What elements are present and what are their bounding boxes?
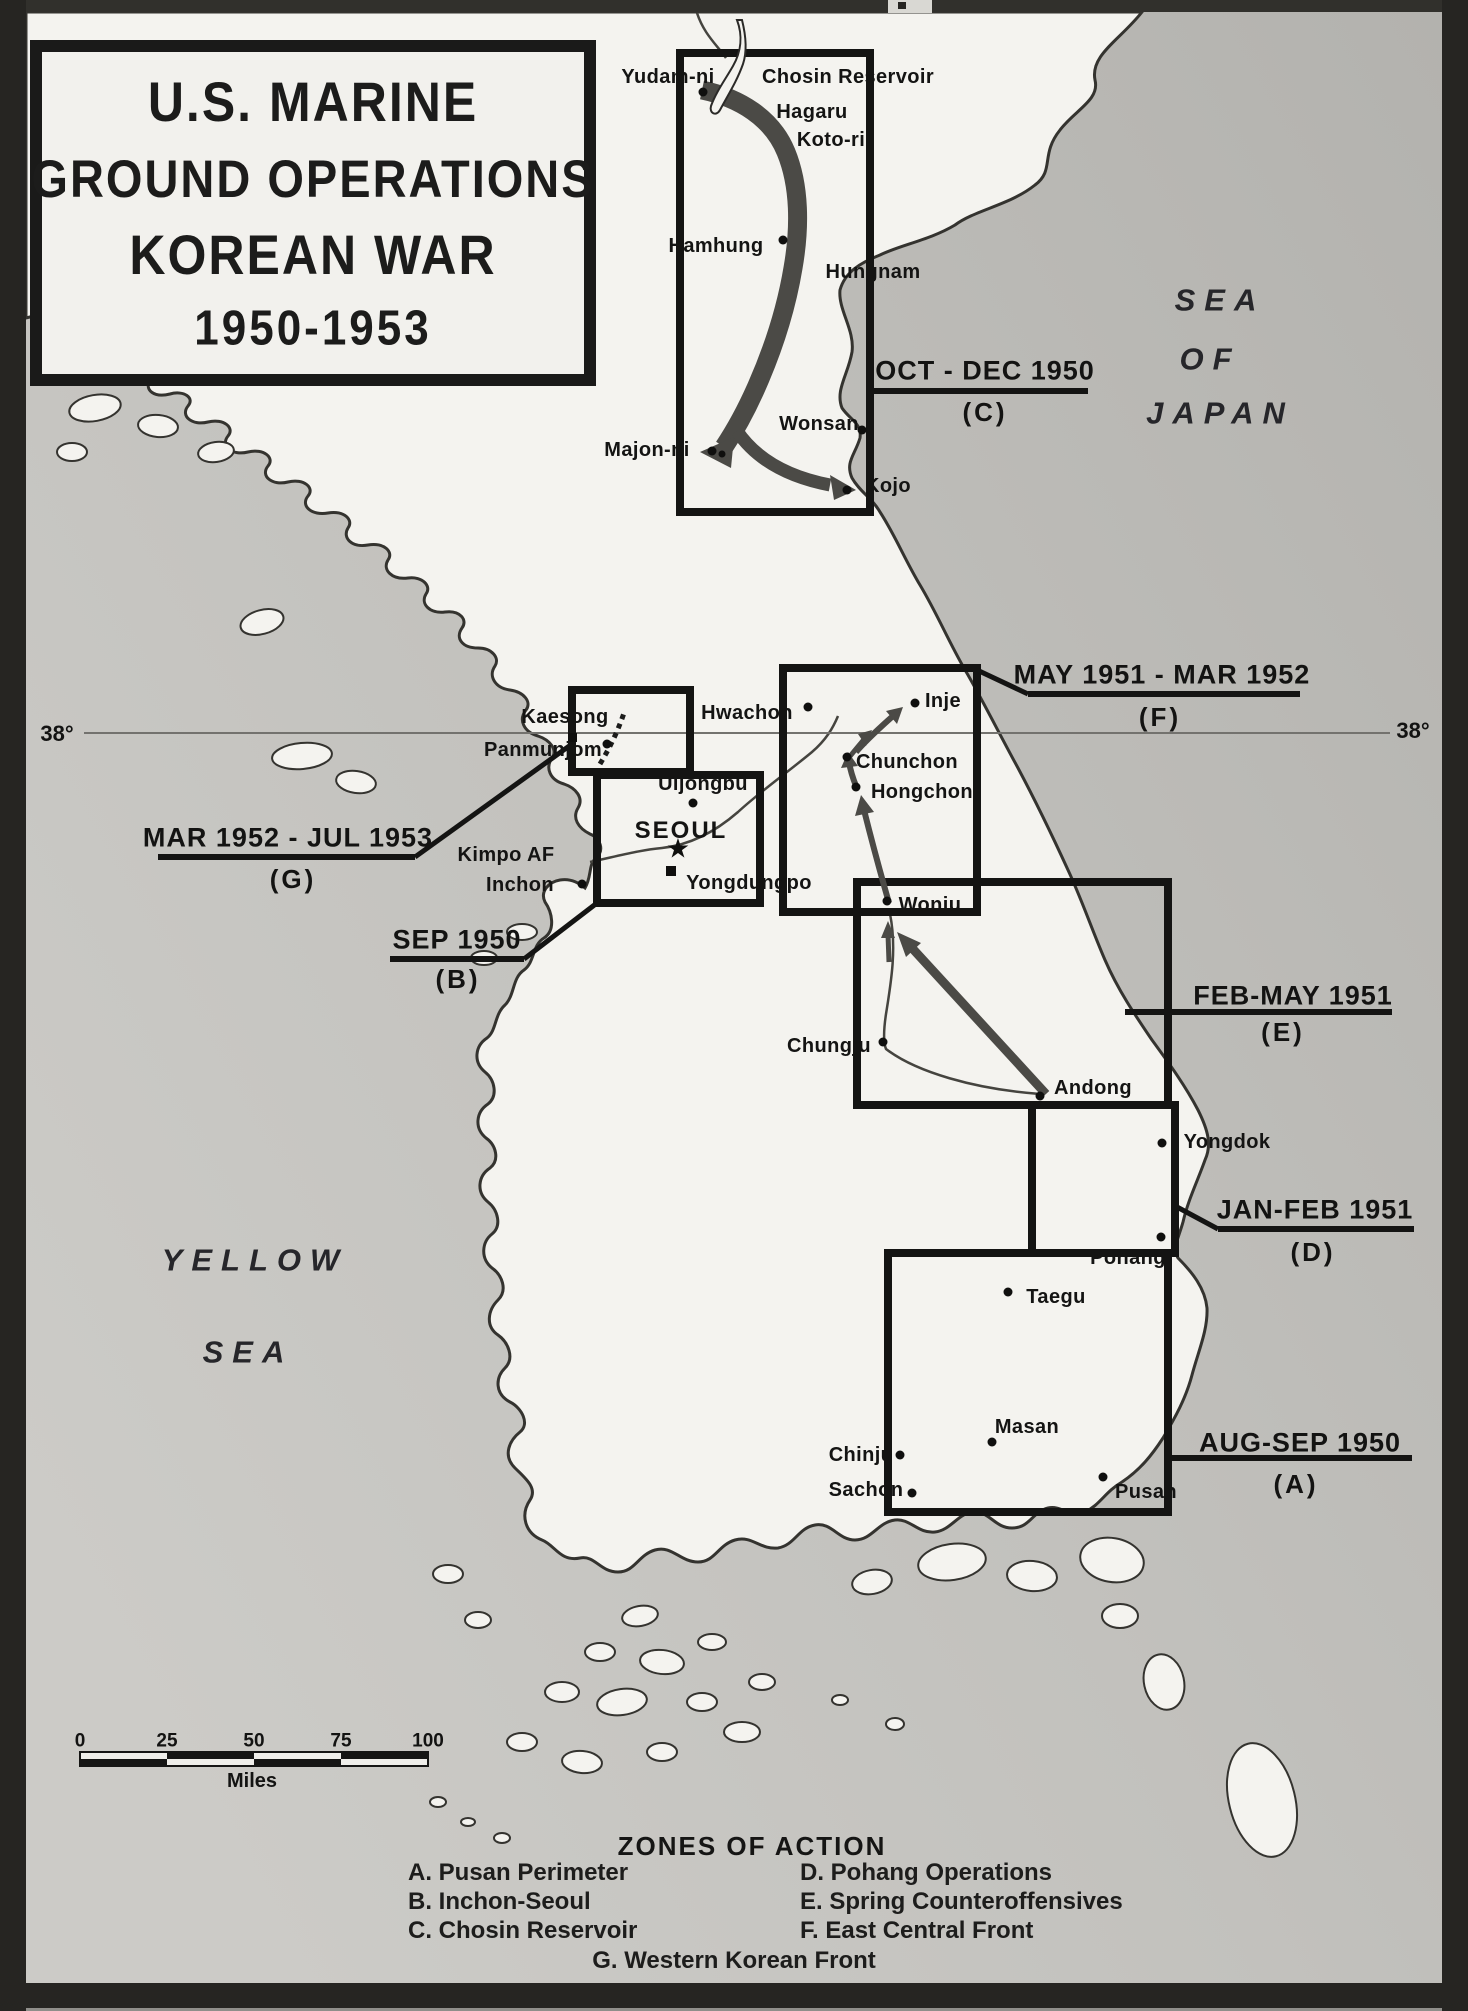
city-label-hongchon: Hongchon <box>871 782 973 802</box>
zone-label-c-date: OCT - DEC 1950 <box>875 358 1095 385</box>
city-label-inje: Inje <box>925 691 961 711</box>
city-label-hungnam: Hungnam <box>825 262 920 282</box>
parallel-38-right: 38° <box>1396 720 1429 742</box>
zone-label-f-date: MAY 1951 - MAR 1952 <box>1014 662 1311 689</box>
title-line-4: 1950-1953 <box>194 301 431 357</box>
zone-label-d-letter: (D) <box>1290 1239 1335 1265</box>
zone-label-g-date: MAR 1952 - JUL 1953 <box>143 825 433 852</box>
city-label-hamhung: Hamhung <box>668 236 763 256</box>
zone-label-g-letter: (G) <box>270 866 317 892</box>
city-label-yongdok: Yongdok <box>1184 1132 1271 1152</box>
city-label-chunchon: Chunchon <box>856 752 958 772</box>
city-label-chinju: Chinju <box>829 1445 894 1465</box>
city-label-inchon: Inchon <box>486 875 554 895</box>
legend-item-d: D. Pohang Operations <box>800 1861 1052 1885</box>
zone-label-e-letter: (E) <box>1261 1019 1305 1045</box>
zone-label-f-letter: (F) <box>1139 704 1181 730</box>
legend-item-b: B. Inchon-Seoul <box>408 1890 591 1914</box>
city-label-wonsan: Wonsan <box>779 414 859 434</box>
scale-tick-100: 100 <box>412 1732 444 1751</box>
city-label-chosin-reservoir: Chosin Reservoir <box>762 67 934 87</box>
zone-label-e-date: FEB-MAY 1951 <box>1193 983 1393 1010</box>
legend-item-f: F. East Central Front <box>800 1919 1033 1943</box>
parallel-38-left: 38° <box>40 723 73 745</box>
title-line-1: U.S. MARINE <box>148 69 478 134</box>
city-label-panmunjom: Panmunjom <box>484 740 602 760</box>
zone-label-d-date: JAN-FEB 1951 <box>1217 1197 1414 1224</box>
city-label-taegu: Taegu <box>1026 1287 1085 1307</box>
seoul-star-icon: ★ <box>666 836 690 863</box>
city-label-pohang: Pohang <box>1090 1248 1166 1268</box>
legend-item-c: C. Chosin Reservoir <box>408 1919 637 1943</box>
scale-tick-0: 0 <box>75 1732 86 1751</box>
legend-item-g: G. Western Korean Front <box>592 1949 876 1973</box>
sea-of-japan-label-3: JAPAN <box>1146 398 1294 429</box>
city-label-masan: Masan <box>995 1417 1059 1437</box>
city-label-kimpo-af: Kimpo AF <box>458 845 555 865</box>
city-label-sachon: Sachon <box>829 1480 904 1500</box>
city-label-kojo: Kojo <box>865 476 911 496</box>
sea-of-japan-label-1: SEA <box>1175 285 1266 316</box>
city-label-wonju: Wonju <box>899 895 962 915</box>
zone-label-b-date: SEP 1950 <box>392 927 521 954</box>
city-label-koto-ri: Koto-ri <box>797 130 865 150</box>
legend-item-e: E. Spring Counteroffensives <box>800 1890 1123 1914</box>
city-label-pusan: Pusan <box>1115 1482 1177 1502</box>
scale-tick-50: 50 <box>243 1732 264 1751</box>
zone-label-c-letter: (C) <box>962 399 1007 425</box>
sea-of-japan-label-2: OF <box>1179 344 1240 375</box>
title-line-2: GROUND OPERATIONS <box>31 147 594 209</box>
city-label-uijongbu: Uijongbu <box>658 774 748 794</box>
city-label-kaesong: Kaesong <box>521 707 608 727</box>
title-line-3: KOREAN WAR <box>129 222 496 287</box>
city-label-hwachon: Hwachon <box>701 703 793 723</box>
scale-unit-label: Miles <box>227 1771 277 1791</box>
yellow-sea-label-1: YELLOW <box>162 1245 349 1276</box>
legend-item-a: A. Pusan Perimeter <box>408 1861 628 1885</box>
city-label-chungju: Chungju <box>787 1036 871 1056</box>
legend-heading: ZONES OF ACTION <box>618 1833 887 1859</box>
zone-label-a-letter: (A) <box>1273 1471 1318 1497</box>
zone-label-a-date: AUG-SEP 1950 <box>1199 1430 1401 1457</box>
scale-tick-25: 25 <box>156 1732 177 1751</box>
city-label-hagaru: Hagaru <box>776 102 847 122</box>
yellow-sea-label-2: SEA <box>203 1337 294 1368</box>
scale-tick-75: 75 <box>330 1732 351 1751</box>
city-label-andong: Andong <box>1054 1078 1132 1098</box>
city-label-yongdungpo: Yongdungpo <box>686 873 812 893</box>
title-box: U.S. MARINE GROUND OPERATIONS KOREAN WAR… <box>30 40 596 386</box>
city-label-majon-ni: Majon-ni <box>604 440 689 460</box>
city-label-yudam-ni: Yudam-ni <box>621 67 714 87</box>
zone-label-b-letter: (B) <box>435 966 480 992</box>
map-page: U.S. MARINE GROUND OPERATIONS KOREAN WAR… <box>0 0 1468 2011</box>
scale-bar <box>80 1752 428 1766</box>
